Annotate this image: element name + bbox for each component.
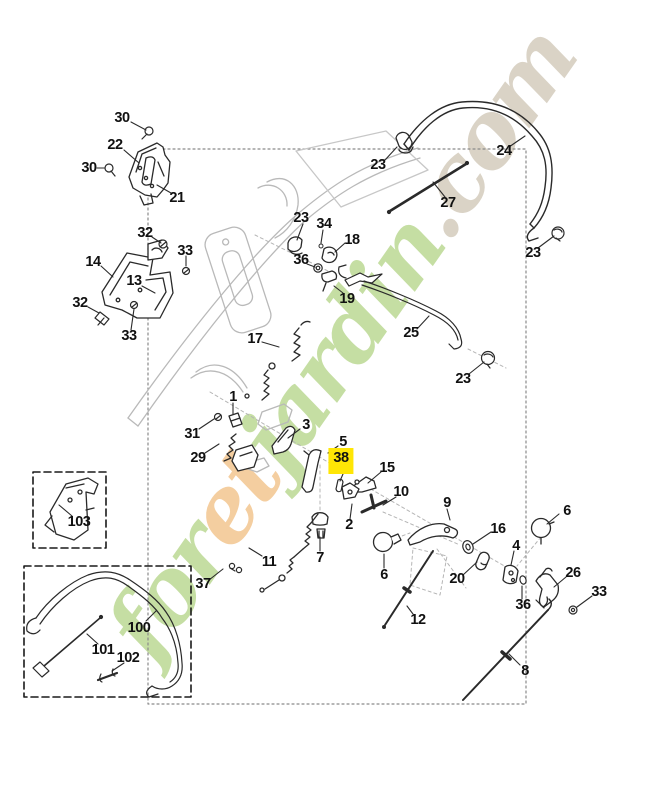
part-callout-17[interactable]: 17 [247,331,262,347]
parts-diagram-page: foretjardin.com [0,0,652,800]
part-callout-14[interactable]: 14 [85,254,100,270]
part-callout-15[interactable]: 15 [379,460,394,476]
part-callout-33[interactable]: 33 [177,243,192,259]
part-callout-101[interactable]: 101 [92,642,115,658]
part-callout-23[interactable]: 23 [455,371,470,387]
part-callout-24[interactable]: 24 [496,143,511,159]
part-callout-11[interactable]: 11 [262,554,276,570]
part-callout-16[interactable]: 16 [490,521,505,537]
part-callout-10[interactable]: 10 [393,484,408,500]
part-callout-30[interactable]: 30 [81,160,96,176]
part-callout-37[interactable]: 37 [195,576,210,592]
part-callout-23[interactable]: 23 [370,157,385,173]
part-callout-23[interactable]: 23 [293,210,308,226]
part-callout-33[interactable]: 33 [121,328,136,344]
part-callout-102[interactable]: 102 [117,650,140,666]
part-callout-22[interactable]: 22 [107,137,122,153]
part-callout-30[interactable]: 30 [114,110,129,126]
part-callout-9[interactable]: 9 [443,495,451,511]
part-callout-19[interactable]: 19 [339,291,354,307]
part-callout-12[interactable]: 12 [410,612,425,628]
part-callout-33[interactable]: 33 [591,584,606,600]
part-callout-3[interactable]: 3 [302,417,310,433]
part-callout-29[interactable]: 29 [190,450,205,466]
part-callout-20[interactable]: 20 [449,571,464,587]
part-callout-2[interactable]: 2 [345,517,353,533]
part-callout-4[interactable]: 4 [512,538,520,554]
part-callout-38[interactable]: 38 [328,448,353,474]
part-callout-25[interactable]: 25 [403,325,418,341]
part-callout-32[interactable]: 32 [137,225,152,241]
callout-layer: 3022302123242732331423341836133219332523… [0,0,652,800]
part-callout-6[interactable]: 6 [563,503,571,519]
part-callout-13[interactable]: 13 [126,273,141,289]
part-callout-7[interactable]: 7 [316,550,324,566]
part-callout-26[interactable]: 26 [565,565,580,581]
part-callout-31[interactable]: 31 [184,426,199,442]
part-callout-36[interactable]: 36 [293,252,308,268]
part-callout-103[interactable]: 103 [68,514,91,530]
part-callout-23[interactable]: 23 [525,245,540,261]
part-callout-21[interactable]: 21 [169,190,184,206]
part-callout-1[interactable]: 1 [229,389,237,405]
part-callout-6[interactable]: 6 [380,567,388,583]
part-callout-8[interactable]: 8 [521,663,529,679]
part-callout-32[interactable]: 32 [72,295,87,311]
part-callout-36[interactable]: 36 [515,597,530,613]
part-callout-27[interactable]: 27 [440,195,455,211]
part-callout-100[interactable]: 100 [128,620,151,636]
part-callout-18[interactable]: 18 [344,232,359,248]
part-callout-34[interactable]: 34 [316,216,331,232]
